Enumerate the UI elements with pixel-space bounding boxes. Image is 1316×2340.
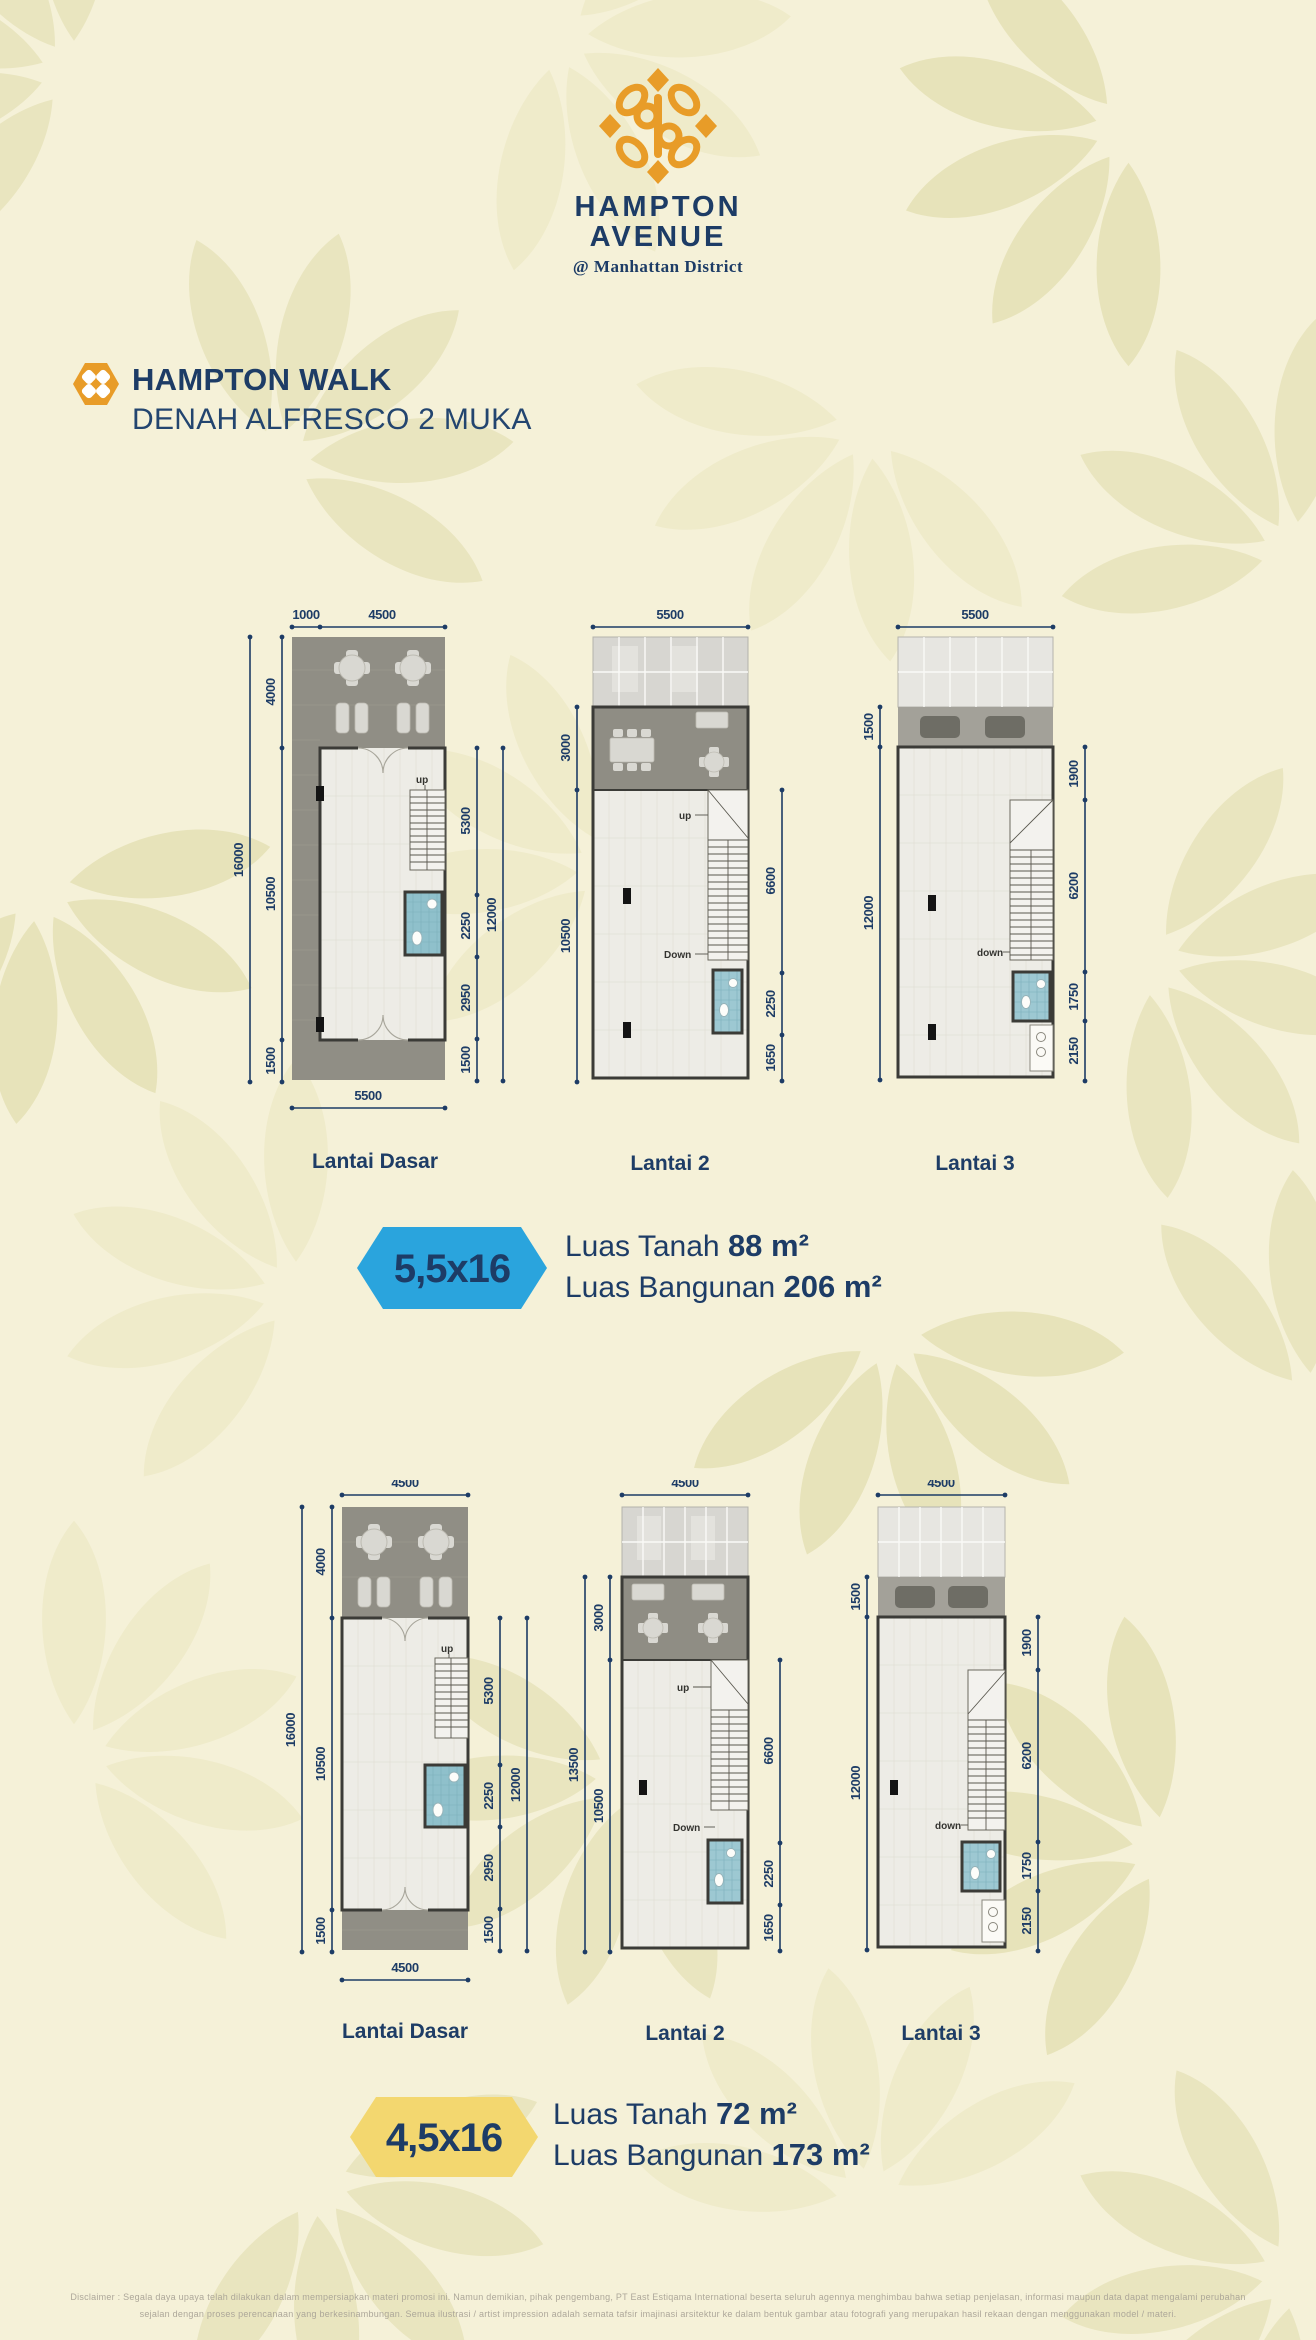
brochure-page: HAMPTON AVENUE @ Manhattan District HAMP… <box>0 0 1316 2340</box>
hampton-avenue-logo-icon <box>598 64 718 188</box>
stair-note-up: up <box>441 1644 453 1655</box>
sink <box>987 1850 996 1859</box>
floor-plan-s1-lantai-dasar: up 1000 4500 16000 4000 10500 1500 <box>225 600 515 1120</box>
dim-label: 6200 <box>1019 1742 1034 1769</box>
brand-name-line1: HAMPTON <box>0 192 1316 222</box>
dim-label: 1900 <box>1066 760 1081 787</box>
stair-note-down: Down <box>664 950 691 961</box>
luas-bangunan-value: 206 m² <box>784 1269 882 1304</box>
sink <box>449 1772 459 1782</box>
balcony <box>593 707 748 790</box>
bathroom <box>425 1765 465 1827</box>
sink <box>427 899 437 909</box>
dim-label: 4500 <box>927 1480 954 1490</box>
dim-label: 1500 <box>848 1583 863 1610</box>
page-title: HAMPTON WALK <box>132 362 392 398</box>
column-marker <box>928 1024 936 1040</box>
dim-label: 4500 <box>391 1960 418 1975</box>
toilet <box>720 1004 729 1017</box>
luas-tanah-label: Luas Tanah <box>565 1230 720 1263</box>
bathroom <box>405 892 442 955</box>
dim-label: 1750 <box>1066 983 1081 1010</box>
door-marker <box>316 786 324 801</box>
floor-label: Lantai Dasar <box>342 2020 468 2044</box>
area-info: Luas Tanah 72 m² Luas Bangunan 173 m² <box>553 2094 870 2176</box>
dim-label: 1500 <box>313 1917 328 1944</box>
dim-label: 4500 <box>671 1480 698 1490</box>
floor-label: Lantai 3 <box>901 2022 980 2046</box>
column-marker <box>623 888 631 904</box>
dim-label: 2950 <box>481 1854 496 1881</box>
dim-label: 16000 <box>283 1713 298 1747</box>
floor-plan-s1-lantai-2: up Down 5500 3000 10500 6600 2250 165 <box>552 600 802 1120</box>
brand-name-line2: AVENUE <box>0 222 1316 252</box>
size-badge-label: 5,5x16 <box>394 1247 510 1291</box>
dim-label: 4000 <box>313 1548 328 1575</box>
bathroom <box>962 1842 1000 1891</box>
stair-note-up: up <box>679 811 691 822</box>
floor-label: Lantai 3 <box>935 1152 1014 1176</box>
page-subtitle: DENAH ALFRESCO 2 MUKA <box>132 403 532 437</box>
roof-canopy <box>622 1507 748 1577</box>
floor-label: Lantai 2 <box>630 1152 709 1176</box>
dim-label: 2950 <box>458 984 473 1011</box>
pantry-counter <box>982 1900 1005 1942</box>
dim-label: 5500 <box>961 607 988 622</box>
roof-canopy <box>593 637 748 707</box>
dim-label: 1650 <box>763 1044 778 1071</box>
size-badge-blue: 5,5x16 <box>357 1227 547 1309</box>
stair-note-up: up <box>677 1683 689 1694</box>
floor-plan-s2-lantai-3: down 4500 1500 12000 1900 6200 <box>840 1480 1090 2035</box>
floor-label: Lantai 2 <box>645 2022 724 2046</box>
dim-label: 2150 <box>1019 1907 1034 1934</box>
dim-label: 16000 <box>231 843 246 877</box>
size-badge-yellow: 4,5x16 <box>350 2097 538 2177</box>
floor-label: Lantai Dasar <box>312 1150 438 1174</box>
dim-label: 1500 <box>458 1046 473 1073</box>
stair-note-down: down <box>935 1821 961 1832</box>
floor-plan-s2-lantai-dasar: up 4500 16000 4000 10500 1500 5300 2250 <box>278 1480 543 2035</box>
dim-label: 5300 <box>458 807 473 834</box>
stair-note-down: Down <box>673 1823 700 1834</box>
toilet <box>412 931 422 945</box>
disclaimer-line-1: Disclaimer : Segala daya upaya telah dil… <box>0 2292 1316 2302</box>
dim-label: 6600 <box>761 1737 776 1764</box>
planter-balcony <box>878 1577 1005 1617</box>
dim-label: 10500 <box>263 877 278 911</box>
toilet <box>971 1867 980 1880</box>
floor-plan-s1-lantai-3: down 5500 1500 12000 1900 <box>845 600 1100 1120</box>
luas-tanah-value: 88 m² <box>728 1228 809 1263</box>
dim-label: 12000 <box>861 896 876 930</box>
floor-plan-s2-lantai-2: up Down 4500 13500 3000 10500 6600 <box>565 1480 820 2035</box>
dim-label: 5300 <box>481 1677 496 1704</box>
dim-label: 1500 <box>263 1047 278 1074</box>
dim-label: 10500 <box>591 1789 606 1823</box>
dim-label: 1000 <box>292 607 319 622</box>
luas-tanah-line: Luas Tanah 88 m² <box>565 1226 882 1267</box>
dim-label: 12000 <box>484 898 499 932</box>
disclaimer-line-2: sejalan dengan proses perencanaan yang b… <box>0 2309 1316 2319</box>
planter-balcony <box>898 707 1053 747</box>
dim-label: 13500 <box>566 1748 581 1782</box>
dim-label: 1650 <box>761 1914 776 1941</box>
dim-label: 5500 <box>354 1088 381 1103</box>
hexagon-flower-icon <box>72 360 120 408</box>
column-marker <box>890 1780 898 1795</box>
dim-label: 1750 <box>1019 1852 1034 1879</box>
area-info: Luas Tanah 88 m² Luas Bangunan 206 m² <box>565 1226 882 1308</box>
dim-label: 6200 <box>1066 872 1081 899</box>
toilet <box>715 1874 724 1887</box>
size-badge-label: 4,5x16 <box>386 2116 502 2160</box>
brand-tagline: @ Manhattan District <box>0 254 1316 277</box>
pantry-counter <box>1030 1025 1053 1071</box>
column-marker <box>928 895 936 911</box>
dim-label: 1900 <box>1019 1629 1034 1656</box>
column-marker <box>639 1780 647 1795</box>
luas-bangunan-label: Luas Bangunan <box>553 2139 763 2172</box>
dim-label: 10500 <box>558 919 573 953</box>
dim-label: 2250 <box>481 1782 496 1809</box>
sink <box>727 1849 736 1858</box>
dim-label: 6600 <box>763 867 778 894</box>
luas-tanah-line: Luas Tanah 72 m² <box>553 2094 870 2135</box>
luas-tanah-label: Luas Tanah <box>553 2098 708 2131</box>
bathroom <box>1013 972 1050 1021</box>
roof-canopy <box>878 1507 1005 1577</box>
dim-label: 4000 <box>263 678 278 705</box>
dim-label: 2250 <box>458 912 473 939</box>
door-marker <box>316 1017 324 1032</box>
dim-label: 4500 <box>391 1480 418 1490</box>
dim-label: 1500 <box>481 1916 496 1943</box>
dim-label: 3000 <box>591 1604 606 1631</box>
stairs: up <box>435 1644 468 1738</box>
sink <box>1037 980 1046 989</box>
dim-label: 4500 <box>368 607 395 622</box>
dim-label: 2250 <box>761 1860 776 1887</box>
luas-bangunan-line: Luas Bangunan 173 m² <box>553 2135 870 2176</box>
dim-label: 10500 <box>313 1747 328 1781</box>
luas-bangunan-line: Luas Bangunan 206 m² <box>565 1267 882 1308</box>
bathroom <box>708 1840 742 1903</box>
stair-note-down: down <box>977 948 1003 959</box>
toilet <box>433 1803 443 1817</box>
column-marker <box>623 1022 631 1038</box>
dim-label: 3000 <box>558 734 573 761</box>
dim-label: 5500 <box>656 607 683 622</box>
roof-canopy <box>898 637 1053 707</box>
luas-bangunan-label: Luas Bangunan <box>565 1271 775 1304</box>
dim-label: 12000 <box>848 1766 863 1800</box>
luas-bangunan-value: 173 m² <box>772 2137 870 2172</box>
stair-note-up: up <box>416 775 428 786</box>
dim-label: 2150 <box>1066 1037 1081 1064</box>
balcony <box>622 1577 748 1660</box>
luas-tanah-value: 72 m² <box>716 2096 797 2131</box>
toilet <box>1022 996 1031 1009</box>
dim-label: 1500 <box>861 713 876 740</box>
bathroom <box>713 970 742 1033</box>
dim-label: 12000 <box>508 1768 523 1802</box>
sink <box>729 979 738 988</box>
dim-label: 2250 <box>763 990 778 1017</box>
